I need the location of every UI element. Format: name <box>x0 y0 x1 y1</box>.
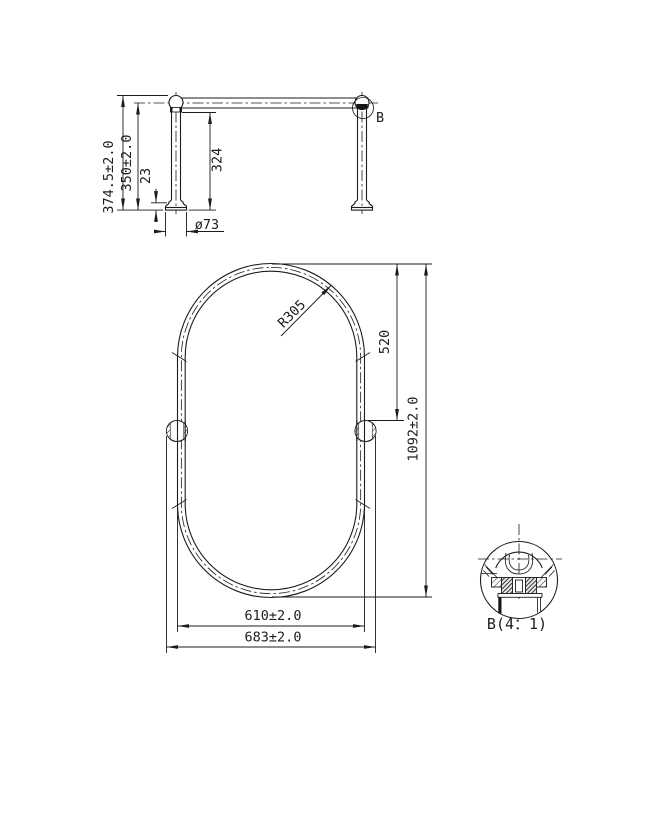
technical-drawing: B 374.5±2.0 350±2.0 <box>0 0 666 823</box>
detail-view-label: B(4：1) <box>487 615 547 633</box>
dim-top-radius: R305 <box>275 297 309 331</box>
left-joint-collar <box>171 108 182 113</box>
left-ring-fitting <box>167 421 188 442</box>
dim-outer-width: 683±2.0 <box>245 630 302 646</box>
dim-top-to-fitting: 520 <box>377 330 393 354</box>
seam-ticks <box>172 353 370 509</box>
dim-tube-width: 610±2.0 <box>245 608 302 624</box>
front-view: R305 520 1092±2.0 610±2.0 <box>167 264 433 654</box>
dim-overall-height-side: 374.5±2.0 <box>101 140 117 213</box>
dim-height-to-rail: 350±2.0 <box>119 135 135 192</box>
side-view: B 374.5±2.0 350±2.0 <box>101 92 384 237</box>
detail-callout-label: B <box>376 110 384 126</box>
dim-base-height: 23 <box>138 168 154 184</box>
detail-nut-section <box>492 578 547 598</box>
ring-centerline <box>181 267 360 593</box>
technical-drawing-page: B 374.5±2.0 350±2.0 <box>0 0 666 823</box>
dim-overall-height-front: 1092±2.0 <box>406 396 422 461</box>
ring-inner-outline <box>185 271 357 590</box>
dim-post-height: 324 <box>210 148 226 172</box>
detail-view: B(4：1) <box>478 524 562 633</box>
right-ring-fitting <box>355 421 376 442</box>
front-view-dimensions: R305 520 1092±2.0 610±2.0 <box>167 264 433 653</box>
ring-outer-outline <box>178 264 365 598</box>
dim-base-diameter: ø73 <box>195 217 219 233</box>
side-view-dimensions: 374.5±2.0 350±2.0 23 324 <box>101 96 226 237</box>
